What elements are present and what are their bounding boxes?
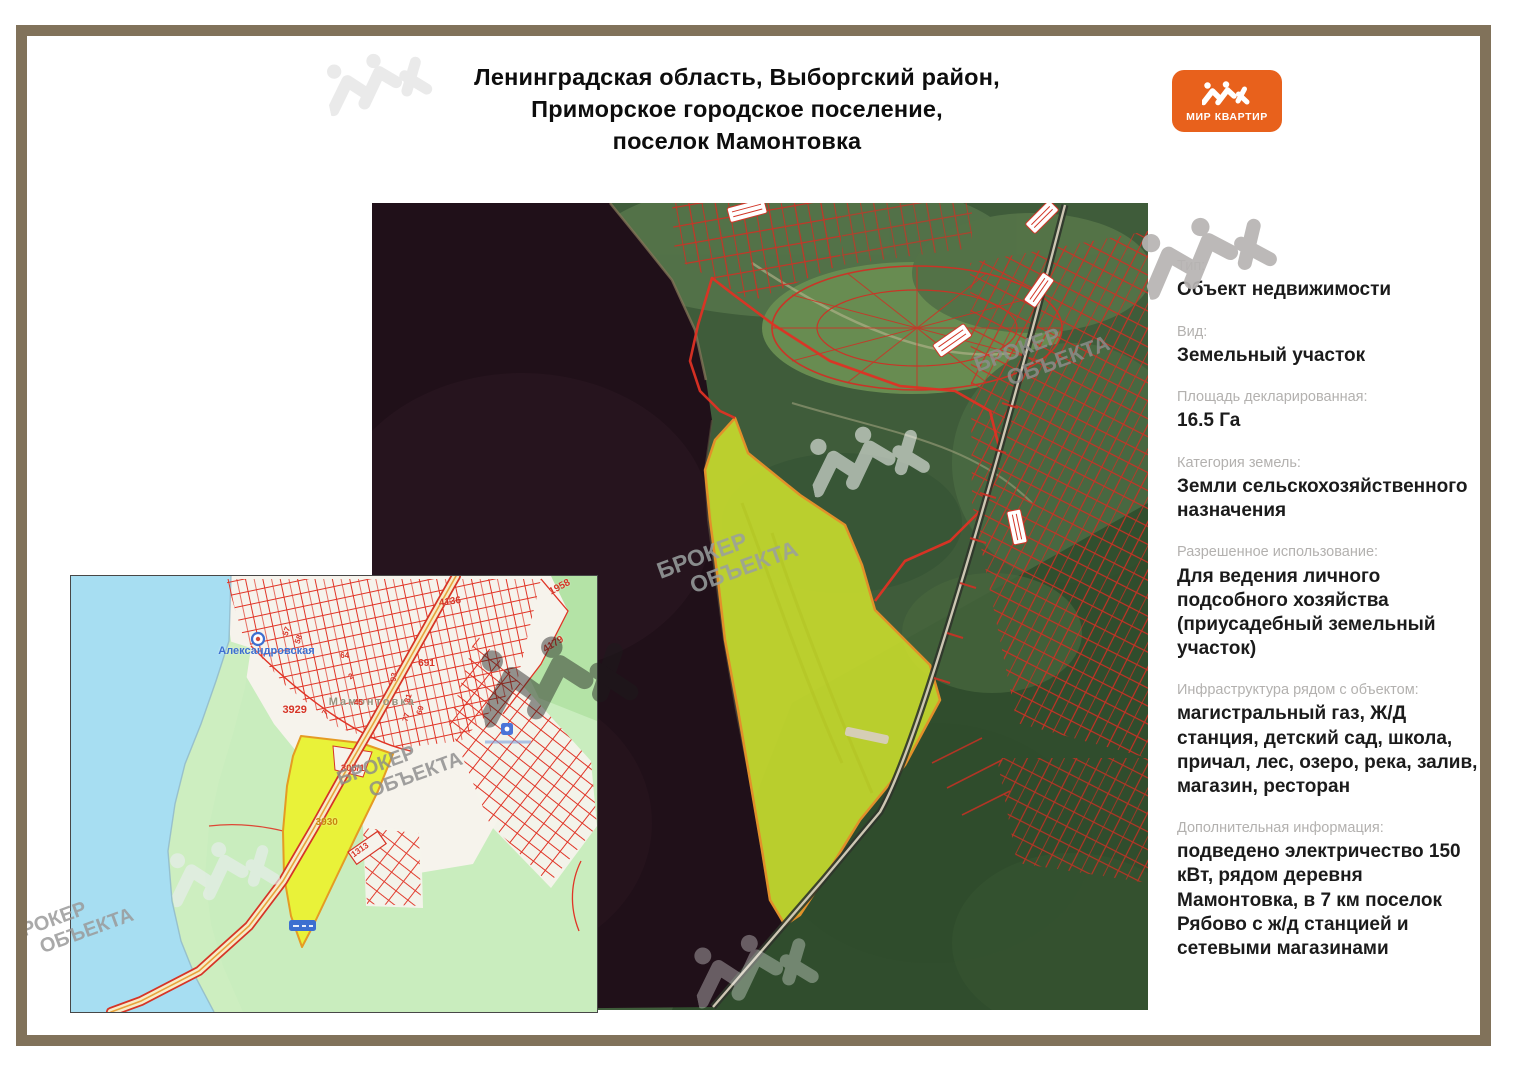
inset-map-labels: АлександровскаяМамонтовка392941361958417… — [71, 576, 597, 1012]
field-value: Земельный участок — [1177, 344, 1487, 368]
map-label-3930: 3930 — [316, 817, 338, 828]
field-label: Вид: — [1177, 324, 1487, 341]
field-label: Дополнительная информация: — [1177, 820, 1487, 837]
flyer-content: Ленинградская область, Выборгский район,… — [27, 36, 1491, 1046]
field-value: подведено электричество 150 кВт, рядом д… — [1177, 840, 1487, 961]
field-label: Категория земель: — [1177, 455, 1487, 472]
mir-kvartir-roofs-icon — [1195, 79, 1259, 109]
field-infrastructure: Инфраструктура рядом с объектом: магистр… — [1177, 682, 1487, 799]
field-additional-info: Дополнительная информация: подведено эле… — [1177, 820, 1487, 961]
cadastral-inset-map: АлександровскаяМамонтовка392941361958417… — [70, 575, 598, 1013]
map-label-77: 77 — [401, 712, 412, 723]
field-value: Объект недвижимости — [1177, 278, 1487, 302]
field-label: Тип: — [1177, 258, 1487, 275]
field-value: Земли сельскохозяйственного назначения — [1177, 475, 1487, 523]
map-label-69: 69 — [414, 705, 425, 716]
title-line-2: Приморское городское поселение, — [247, 94, 1227, 126]
mir-kvartir-logo: МИР КВАРТИР — [1172, 70, 1282, 132]
logo-text: МИР КВАРТИР — [1186, 111, 1268, 123]
title-line-3: поселок Мамонтовка — [247, 126, 1227, 158]
field-label: Разрешенное использование: — [1177, 544, 1487, 561]
map-label-7: 7 — [320, 709, 330, 717]
map-label-691: 691 — [418, 658, 435, 669]
map-label-2: 2 — [346, 671, 354, 681]
field-value: магистральный газ, Ж/Д станция, детский … — [1177, 702, 1487, 799]
title-line-1: Ленинградская область, Выборгский район, — [247, 62, 1227, 94]
map-label-305/1: 305/1 — [341, 763, 365, 774]
map-label-58: 58 — [293, 633, 305, 644]
map-label-1313: 1313 — [350, 840, 371, 859]
field-land-category: Категория земель: Земли сельскохозяйстве… — [1177, 455, 1487, 524]
map-label-4136: 4136 — [438, 595, 462, 609]
map-label-александровская: Александровская — [218, 645, 314, 657]
field-kind: Вид: Земельный участок — [1177, 324, 1487, 369]
map-label-3929: 3929 — [282, 704, 306, 716]
field-area: Площадь декларированная: 16.5 Га — [1177, 389, 1487, 434]
field-permitted-use: Разрешенное использование: Для ведения л… — [1177, 544, 1487, 661]
field-value: Для ведения личного подсобного хозяйства… — [1177, 565, 1487, 662]
property-details: Тип: Объект недвижимости Вид: Земельный … — [1177, 258, 1487, 982]
field-type: Тип: Объект недвижимости — [1177, 258, 1487, 303]
map-label-57: 57 — [280, 626, 292, 637]
map-label-64: 64 — [340, 651, 349, 660]
map-label-1958: 1958 — [547, 578, 572, 598]
flyer-page: Ленинградская область, Выборгский район,… — [0, 0, 1519, 1080]
field-label: Инфраструктура рядом с объектом: — [1177, 682, 1487, 699]
field-value: 16.5 Га — [1177, 409, 1487, 433]
field-label: Площадь декларированная: — [1177, 389, 1487, 406]
map-label-45: 45 — [354, 698, 363, 707]
map-label-93: 93 — [388, 672, 398, 682]
map-label-4179: 4179 — [541, 634, 566, 655]
page-title: Ленинградская область, Выборгский район,… — [247, 62, 1227, 158]
